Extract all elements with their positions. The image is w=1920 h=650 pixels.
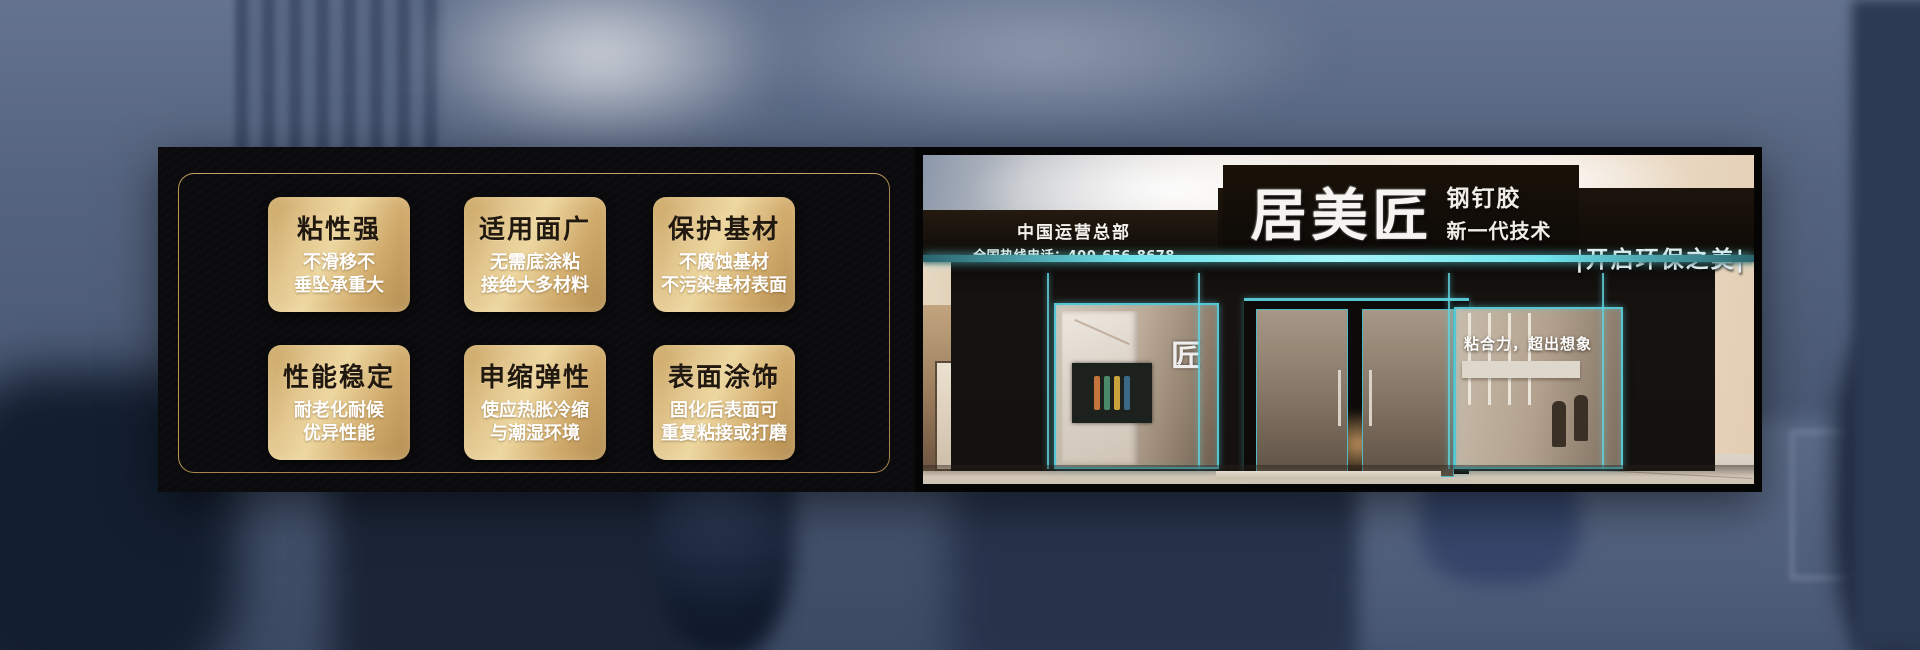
badge-line: 优异性能	[268, 422, 410, 445]
badge-line: 不滑移不	[268, 251, 410, 274]
promo-banner: 粘性强 不滑移不 垂坠承重大 适用面广 无需底涂粘 接绝大多材料 保护基材 不腐…	[158, 147, 1762, 492]
storefront-building: 匠	[951, 258, 1715, 471]
badge-title: 性能稳定	[268, 345, 410, 394]
background-table-silhouette	[950, 470, 1370, 650]
door-pane-right	[1362, 309, 1454, 477]
display-window-right: 粘合力，超出想象	[1454, 307, 1623, 469]
led-accent	[1448, 273, 1450, 469]
window-pole	[1508, 313, 1511, 405]
product-tube	[1124, 376, 1130, 410]
product-tube	[1094, 376, 1100, 410]
badge-title: 表面涂饰	[653, 345, 795, 394]
promo-banner-page: 粘性强 不滑移不 垂坠承重大 适用面广 无需底涂粘 接绝大多材料 保护基材 不腐…	[0, 0, 1920, 650]
window-pole	[1468, 313, 1471, 405]
door-handle	[1369, 370, 1372, 426]
product-name: 钢钉胶	[1447, 179, 1552, 213]
window-pole	[1528, 313, 1531, 405]
badge-line: 与潮湿环境	[464, 422, 606, 445]
door-pane-left	[1256, 309, 1348, 477]
feature-badge-stable: 性能稳定 耐老化耐候 优异性能	[268, 345, 410, 460]
feature-badge-adhesion: 粘性强 不滑移不 垂坠承重大	[268, 197, 410, 312]
storefront-photo-frame: 匠	[915, 147, 1762, 492]
product-display-board	[1072, 363, 1152, 423]
badge-line: 耐老化耐候	[268, 399, 410, 422]
feature-badge-elastic: 申缩弹性 使应热胀冷缩 与潮湿环境	[464, 345, 606, 460]
background-haze	[760, 0, 1320, 130]
doorstep	[1216, 471, 1441, 479]
glass-decal: 匠	[1171, 331, 1201, 375]
led-accent	[1602, 273, 1604, 469]
hq-sign: 中国运营总部 全国热线电话：400-656-8678	[923, 210, 1225, 258]
window-pole	[1488, 313, 1491, 405]
led-accent	[1047, 273, 1049, 469]
brand-name: 居美匠	[1251, 171, 1434, 252]
display-window-left: 匠	[1054, 303, 1219, 469]
badge-title: 适用面广	[464, 197, 606, 246]
interior-figure	[1552, 401, 1566, 447]
badge-line: 固化后表面可	[653, 399, 795, 422]
marble-vein	[1074, 319, 1130, 345]
background-right-wall	[1852, 0, 1920, 650]
feature-badge-finish: 表面涂饰 固化后表面可 重复粘接或打磨	[653, 345, 795, 460]
brand-sign: 居美匠 钢钉胶 新一代技术	[1223, 165, 1579, 258]
led-accent	[1198, 273, 1200, 469]
badge-line: 无需底涂粘	[464, 251, 606, 274]
badge-line: 垂坠承重大	[268, 274, 410, 297]
storefront-photo: 匠	[923, 155, 1754, 484]
product-tagline: 新一代技术	[1447, 215, 1552, 244]
hq-label: 中国运营总部	[933, 218, 1215, 243]
product-tube	[1114, 376, 1120, 410]
door-handle	[1338, 370, 1341, 426]
badge-line: 重复粘接或打磨	[653, 422, 795, 445]
badge-title: 申缩弹性	[464, 345, 606, 394]
badge-line: 不腐蚀基材	[653, 251, 795, 274]
window-shelf	[1462, 361, 1580, 378]
badge-line: 使应热胀冷缩	[464, 399, 606, 422]
feature-badge-wide-use: 适用面广 无需底涂粘 接绝大多材料	[464, 197, 606, 312]
badge-title: 保护基材	[653, 197, 795, 246]
interior-figure	[1574, 395, 1588, 441]
entrance-door	[1244, 298, 1469, 474]
led-strip	[923, 255, 1754, 262]
feature-badge-protect: 保护基材 不腐蚀基材 不污染基材表面	[653, 197, 795, 312]
badge-line: 接绝大多材料	[464, 274, 606, 297]
background-window-light	[410, 0, 790, 150]
background-window-slats	[235, 0, 445, 155]
window-tagline: 粘合力，超出想象	[1464, 333, 1622, 354]
badge-line: 不污染基材表面	[653, 274, 795, 297]
badge-title: 粘性强	[268, 197, 410, 246]
product-tube	[1104, 376, 1110, 410]
